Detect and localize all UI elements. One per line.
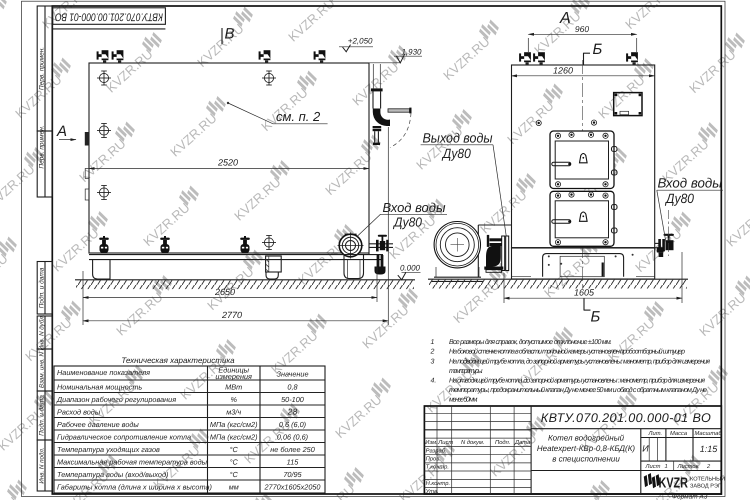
svg-text:Подп.: Подп. <box>495 439 510 446</box>
svg-text:%: % <box>230 395 237 404</box>
svg-text:измерения: измерения <box>215 372 252 381</box>
svg-text:ЗАВОД РЭП: ЗАВОД РЭП <box>690 484 722 490</box>
svg-text:115: 115 <box>287 458 300 467</box>
svg-text:КВТУ.070.201.00.000-01 ВО: КВТУ.070.201.00.000-01 ВО <box>541 411 711 425</box>
svg-text:°С: °С <box>230 470 239 479</box>
svg-text:температуры.: температуры. <box>449 368 483 375</box>
svg-text:В: В <box>225 26 235 43</box>
svg-text:KVZR.RU: KVZR.RU <box>477 187 529 236</box>
svg-text:Наименование показателя: Наименование показателя <box>57 368 150 377</box>
svg-text:Утв.: Утв. <box>425 489 439 495</box>
svg-text:Номинальная мощность: Номинальная мощность <box>57 383 142 392</box>
svg-text:Инв. N дубл.: Инв. N дубл. <box>39 315 46 351</box>
svg-text:менее 50 мм.: менее 50 мм. <box>449 397 478 404</box>
svg-text:не более 250: не более 250 <box>270 445 315 454</box>
svg-text:На отводящей трубе котла ,до з: На отводящей трубе котла ,до запорной ар… <box>449 377 705 385</box>
svg-text:KVZR.RU: KVZR.RU <box>76 136 128 185</box>
svg-text:0.000: 0.000 <box>400 264 421 273</box>
svg-text:0,6 (6,0): 0,6 (6,0) <box>279 420 306 429</box>
svg-text:Подп. и дата: Подп. и дата <box>39 395 46 436</box>
svg-text:А: А <box>559 10 571 27</box>
svg-text:Ду80: Ду80 <box>441 146 471 161</box>
svg-text:KVZR.RU: KVZR.RU <box>686 47 738 96</box>
svg-text:На подводящей трубе котла, д: На подводящей трубе котла, до запорной а… <box>449 357 710 365</box>
svg-text:KVZR.RU: KVZR.RU <box>322 149 374 198</box>
svg-text:KVZR.RU: KVZR.RU <box>0 161 38 210</box>
svg-text:°С: °С <box>230 445 239 454</box>
svg-text:мм: мм <box>229 483 239 492</box>
svg-text:Изм.: Изм. <box>425 440 437 446</box>
svg-text:Инв. N подл.: Инв. N подл. <box>39 447 46 483</box>
svg-text:KVZR.RU: KVZR.RU <box>359 302 411 351</box>
svg-text:1605: 1605 <box>574 287 595 297</box>
svg-text:см. п. 2: см. п. 2 <box>276 109 321 124</box>
svg-text:Котел водогрейный: Котел водогрейный <box>548 434 625 443</box>
svg-text:KVZR.RU: KVZR.RU <box>22 315 74 364</box>
svg-text:2: 2 <box>430 349 435 356</box>
svg-text:МВт: МВт <box>225 383 242 392</box>
svg-text:Рабочее давление воды: Рабочее давление воды <box>57 420 139 429</box>
svg-text:KVZR.RU: KVZR.RU <box>349 59 401 108</box>
svg-text:в специсполнении: в специсполнении <box>552 455 620 464</box>
svg-text:28: 28 <box>287 407 298 417</box>
svg-text:3: 3 <box>431 358 435 365</box>
svg-text:2770х1605х2050: 2770х1605х2050 <box>264 483 321 492</box>
svg-text:2520: 2520 <box>217 158 238 168</box>
svg-text:0,06 (0,6): 0,06 (0,6) <box>277 433 308 442</box>
svg-text:KVZR.RU: KVZR.RU <box>332 392 384 441</box>
svg-text:Все размеры для справок, допус: Все размеры для справок, допустимое откл… <box>449 338 612 346</box>
svg-text:KVZR.RU: KVZR.RU <box>440 34 492 83</box>
svg-text:Б: Б <box>593 41 603 58</box>
svg-text:КОТЕЛЬНЫЙ: КОТЕЛЬНЫЙ <box>690 475 725 483</box>
svg-text:КВТУ.070.201.00.000-01 ВО: КВТУ.070.201.00.000-01 ВО <box>55 10 163 22</box>
svg-text:Листов: Листов <box>677 464 699 470</box>
svg-text:KVZR.RU: KVZR.RU <box>49 225 101 274</box>
svg-text:Пров.: Пров. <box>426 457 441 463</box>
svg-text:Б: Б <box>591 309 601 326</box>
svg-text:Диапазон рабочего регулировани: Диапазон рабочего регулирования <box>56 395 176 404</box>
svg-text:Значение: Значение <box>276 370 308 379</box>
svg-text:Масштаб: Масштаб <box>695 430 723 437</box>
svg-text:Масса: Масса <box>670 431 688 437</box>
svg-text:Габариты котла (длина х ширина: Габариты котла (длина х ширина х высота) <box>57 483 212 492</box>
svg-text:Ду80: Ду80 <box>392 215 423 230</box>
svg-text:70/95: 70/95 <box>283 470 302 479</box>
svg-text:На боковой стенке котла в обла: На боковой стенке котла в области топочн… <box>449 348 685 356</box>
svg-text:KVZR.RU: KVZR.RU <box>605 315 657 364</box>
svg-text:2650: 2650 <box>214 287 235 297</box>
svg-text:°С: °С <box>230 458 239 467</box>
svg-text:1: 1 <box>431 339 435 346</box>
svg-text:960: 960 <box>575 24 589 34</box>
svg-text:KVZR.RU: KVZR.RU <box>231 174 283 223</box>
svg-text:+2,050: +2,050 <box>348 37 373 46</box>
svg-text:Т.контр.: Т.контр. <box>426 465 449 471</box>
svg-text:KVZR: KVZR <box>659 476 689 492</box>
svg-text:Лист: Лист <box>645 464 661 470</box>
svg-text:МПа (кгс/см2): МПа (кгс/см2) <box>210 433 258 442</box>
svg-text:Лит.: Лит. <box>648 431 663 437</box>
svg-text:KVZR.RU: KVZR.RU <box>113 289 165 338</box>
svg-text:И: И <box>642 444 649 454</box>
svg-text:Температура уходящих газов: Температура уходящих газов <box>57 445 160 454</box>
svg-text:Перв. примен.: Перв. примен. <box>39 125 46 168</box>
svg-text:Взам. инв. N: Взам. инв. N <box>39 351 46 388</box>
svg-text:Подп. и дата: Подп. и дата <box>39 267 46 308</box>
svg-text:2770: 2770 <box>221 310 242 320</box>
svg-text:KVZR.RU: KVZR.RU <box>103 46 155 95</box>
svg-text:температуры, предохранительный: температуры, предохранительный клапан Ду… <box>449 386 707 394</box>
svg-text:Техническая характеристика: Техническая характеристика <box>121 356 235 365</box>
svg-text:Дата: Дата <box>514 440 531 446</box>
svg-text:МПа (кгс/см2): МПа (кгс/см2) <box>210 420 258 429</box>
svg-text:Расход воды: Расход воды <box>57 408 101 417</box>
svg-text:2: 2 <box>706 463 711 470</box>
svg-text:1260: 1260 <box>553 66 573 76</box>
svg-text:KVZR.RU: KVZR.RU <box>723 200 750 249</box>
svg-text:KVZR.RU: KVZR.RU <box>696 290 748 339</box>
svg-text:А: А <box>56 123 67 140</box>
svg-text:Температура воды (вход/выход): Температура воды (вход/выход) <box>57 470 168 479</box>
svg-text:Перв. примен.: Перв. примен. <box>39 47 46 90</box>
svg-text:Вход воды: Вход воды <box>383 200 446 215</box>
svg-text:Максимальная рабочая температу: Максимальная рабочая температура воды <box>57 458 208 467</box>
svg-text:1:15: 1:15 <box>700 444 719 454</box>
svg-text:N докум.: N докум. <box>461 439 484 446</box>
svg-text:1: 1 <box>665 464 668 470</box>
svg-text:Н.контр.: Н.контр. <box>426 481 451 487</box>
svg-text:Вход воды: Вход воды <box>658 176 723 191</box>
svg-text:Гидравлическое сопротивление к: Гидравлическое сопротивление котла <box>57 433 191 442</box>
svg-text:KVZR.RU: KVZR.RU <box>622 0 674 32</box>
svg-text:Выход воды: Выход воды <box>423 131 493 146</box>
svg-text:Heatexpert-КВр-0,8-КБД(К): Heatexpert-КВр-0,8-КБД(К) <box>537 444 636 453</box>
svg-text:м3/ч: м3/ч <box>226 408 241 417</box>
svg-text:Ду80: Ду80 <box>664 191 694 206</box>
svg-text:Формат А3: Формат А3 <box>672 494 708 500</box>
svg-text:KVZR.RU: KVZR.RU <box>0 251 11 300</box>
svg-text:KVZR.RU: KVZR.RU <box>0 8 1 57</box>
svg-text:KVZR.RU: KVZR.RU <box>167 110 219 159</box>
svg-text:50-100: 50-100 <box>281 395 304 404</box>
svg-text:Лист: Лист <box>437 440 453 446</box>
svg-text:0,8: 0,8 <box>287 383 298 392</box>
svg-text:4.: 4. <box>431 378 437 385</box>
svg-text:Разраб.: Разраб. <box>426 447 447 454</box>
